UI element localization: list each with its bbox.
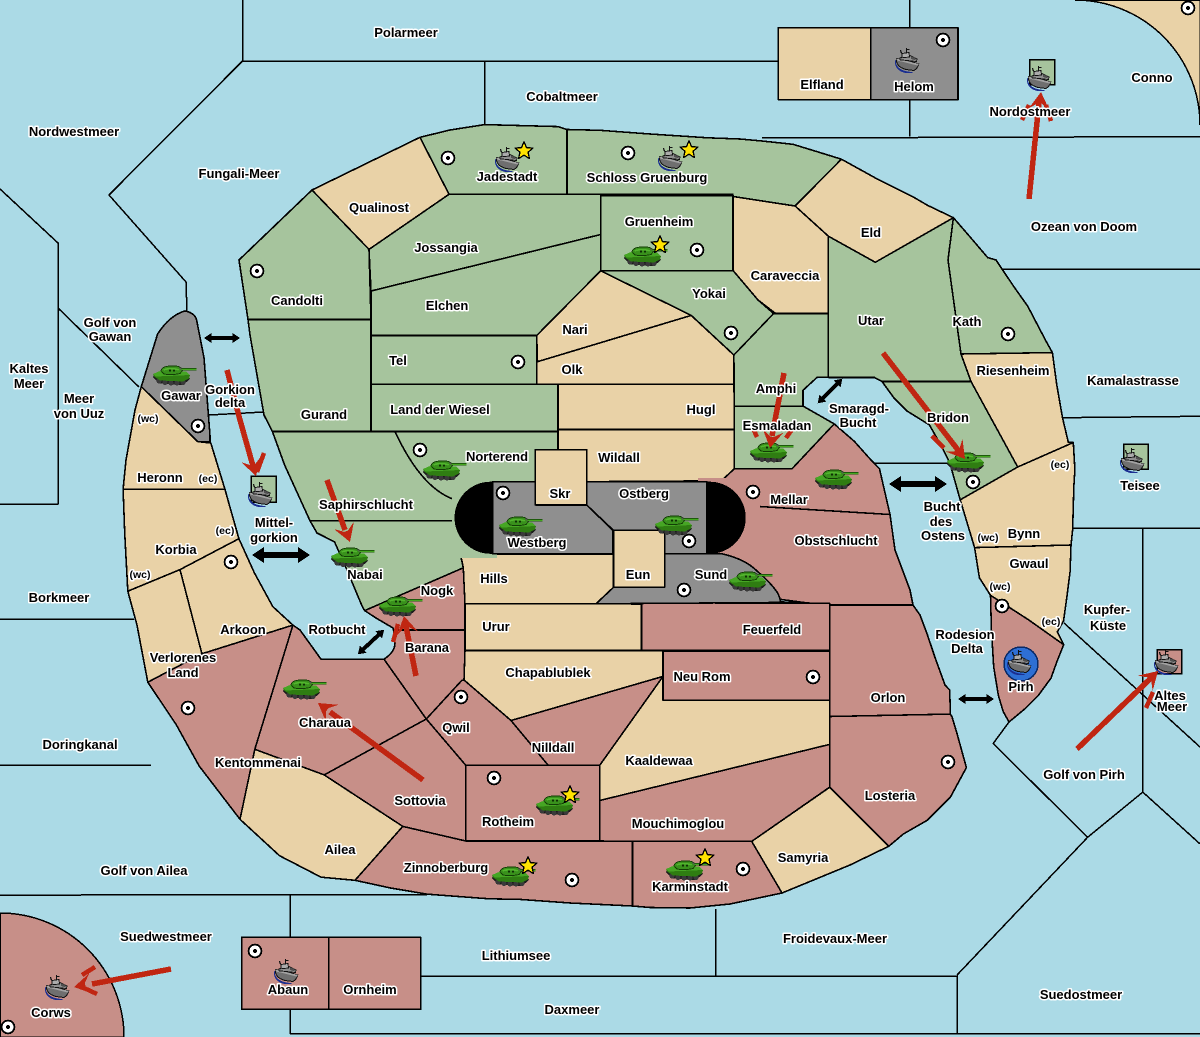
svg-text:Rotheim: Rotheim <box>482 814 534 829</box>
svg-text:Saphirschlucht: Saphirschlucht <box>319 497 414 512</box>
svg-text:Suedwestmeer: Suedwestmeer <box>120 929 212 944</box>
svg-text:Charaua: Charaua <box>299 715 352 730</box>
svg-text:Chapablublek: Chapablublek <box>505 665 591 680</box>
svg-text:Froidevaux-Meer: Froidevaux-Meer <box>783 931 887 946</box>
svg-text:gorkion: gorkion <box>250 530 298 545</box>
svg-text:(ec): (ec) <box>1042 616 1061 628</box>
svg-text:Borkmeer: Borkmeer <box>29 590 90 605</box>
svg-text:Qwil: Qwil <box>442 720 469 735</box>
svg-text:(ec): (ec) <box>199 473 218 485</box>
svg-text:Sund: Sund <box>695 567 728 582</box>
svg-text:Samyria: Samyria <box>778 850 829 865</box>
svg-text:Abaun: Abaun <box>268 982 309 997</box>
svg-text:Gruenheim: Gruenheim <box>625 214 694 229</box>
svg-text:Mittel-: Mittel- <box>255 515 293 530</box>
svg-text:Urur: Urur <box>482 619 509 634</box>
svg-text:Golf von Ailea: Golf von Ailea <box>101 863 189 878</box>
svg-text:(wc): (wc) <box>978 532 999 544</box>
svg-text:Feuerfeld: Feuerfeld <box>743 622 802 637</box>
svg-text:(wc): (wc) <box>990 581 1011 593</box>
svg-text:Gurand: Gurand <box>301 407 347 422</box>
svg-text:Caraveccia: Caraveccia <box>751 268 820 283</box>
svg-text:Bucht: Bucht <box>924 499 962 514</box>
svg-text:Kath: Kath <box>953 314 982 329</box>
svg-text:Candolti: Candolti <box>271 293 323 308</box>
svg-text:Esmaladan: Esmaladan <box>743 418 812 433</box>
svg-text:delta: delta <box>215 395 246 410</box>
svg-text:Kaaldewaa: Kaaldewaa <box>625 753 693 768</box>
svg-text:Küste: Küste <box>1090 618 1126 633</box>
svg-text:Bucht: Bucht <box>840 415 878 430</box>
svg-text:Olk: Olk <box>562 362 584 377</box>
svg-text:Heronn: Heronn <box>137 470 183 485</box>
svg-text:Neu Rom: Neu Rom <box>673 669 730 684</box>
svg-text:Doringkanal: Doringkanal <box>42 737 117 752</box>
svg-text:Meer: Meer <box>1157 699 1187 714</box>
svg-text:Bynn: Bynn <box>1008 526 1041 541</box>
svg-text:Eld: Eld <box>861 225 881 240</box>
svg-text:Barana: Barana <box>405 640 450 655</box>
svg-text:Ostberg: Ostberg <box>619 486 669 501</box>
svg-text:Nari: Nari <box>562 322 587 337</box>
svg-text:Hills: Hills <box>480 571 507 586</box>
svg-text:Westberg: Westberg <box>508 535 567 550</box>
svg-text:Land der Wiesel: Land der Wiesel <box>390 402 490 417</box>
svg-text:Hugl: Hugl <box>687 402 716 417</box>
svg-text:Qualinost: Qualinost <box>349 200 410 215</box>
svg-text:(ec): (ec) <box>216 525 235 537</box>
svg-text:(ec): (ec) <box>1051 459 1070 471</box>
svg-text:Teisee: Teisee <box>1120 478 1160 493</box>
svg-text:Smaragd-: Smaragd- <box>829 401 889 416</box>
svg-text:Nogk: Nogk <box>421 583 454 598</box>
svg-text:Suedostmeer: Suedostmeer <box>1040 987 1122 1002</box>
svg-text:Delta: Delta <box>951 641 984 656</box>
svg-text:Obstschlucht: Obstschlucht <box>794 533 878 548</box>
svg-text:Rodesion: Rodesion <box>935 627 994 642</box>
svg-text:Kentommenai: Kentommenai <box>215 755 301 770</box>
svg-text:Utar: Utar <box>858 313 884 328</box>
svg-text:Korbia: Korbia <box>155 542 197 557</box>
svg-text:Kamalastrasse: Kamalastrasse <box>1087 373 1179 388</box>
svg-text:des: des <box>930 514 952 529</box>
svg-text:Pirh: Pirh <box>1008 679 1033 694</box>
svg-text:Lithiumsee: Lithiumsee <box>482 948 551 963</box>
svg-text:Bridon: Bridon <box>927 410 969 425</box>
svg-text:Golf von: Golf von <box>84 315 137 330</box>
svg-text:Fungali-Meer: Fungali-Meer <box>199 166 280 181</box>
svg-text:(wc): (wc) <box>130 569 151 581</box>
svg-text:Elfland: Elfland <box>800 77 843 92</box>
svg-text:Corws: Corws <box>31 1005 71 1020</box>
svg-text:Sottovia: Sottovia <box>394 793 446 808</box>
svg-text:Nilldall: Nilldall <box>532 740 575 755</box>
svg-text:Schloss Gruenburg: Schloss Gruenburg <box>587 170 708 185</box>
svg-text:Gawar: Gawar <box>161 388 201 403</box>
svg-text:Losteria: Losteria <box>865 788 916 803</box>
svg-text:Daxmeer: Daxmeer <box>545 1002 600 1017</box>
svg-text:Golf von Pirh: Golf von Pirh <box>1043 767 1125 782</box>
svg-text:Nordostmeer: Nordostmeer <box>990 104 1071 119</box>
svg-text:Mouchimoglou: Mouchimoglou <box>632 816 724 831</box>
svg-text:Nordwestmeer: Nordwestmeer <box>29 124 119 139</box>
svg-text:Jossangia: Jossangia <box>414 240 478 255</box>
svg-text:Helom: Helom <box>894 79 934 94</box>
svg-text:Conno: Conno <box>1131 70 1172 85</box>
svg-text:Meer: Meer <box>14 376 44 391</box>
svg-text:Kupfer-: Kupfer- <box>1084 602 1130 617</box>
svg-text:Jadestadt: Jadestadt <box>477 169 538 184</box>
svg-text:Meer: Meer <box>64 391 94 406</box>
svg-text:Nabai: Nabai <box>347 567 382 582</box>
svg-text:Ailea: Ailea <box>324 842 356 857</box>
svg-text:Verlorenes: Verlorenes <box>150 650 217 665</box>
svg-text:Riesenheim: Riesenheim <box>977 363 1050 378</box>
svg-text:Cobaltmeer: Cobaltmeer <box>526 89 598 104</box>
svg-text:Kaltes: Kaltes <box>9 361 48 376</box>
svg-text:Wildall: Wildall <box>598 450 640 465</box>
svg-text:Ornheim: Ornheim <box>343 982 396 997</box>
svg-text:Elchen: Elchen <box>426 298 469 313</box>
svg-text:von Uuz: von Uuz <box>54 406 105 421</box>
svg-text:Gawan: Gawan <box>89 329 132 344</box>
svg-text:Karminstadt: Karminstadt <box>652 879 729 894</box>
svg-text:Norterend: Norterend <box>466 449 528 464</box>
svg-text:Polarmeer: Polarmeer <box>374 25 438 40</box>
svg-text:Orlon: Orlon <box>871 690 906 705</box>
svg-text:Tel: Tel <box>389 353 407 368</box>
svg-text:Mellar: Mellar <box>770 492 808 507</box>
svg-text:Rotbucht: Rotbucht <box>308 622 366 637</box>
svg-text:Yokai: Yokai <box>692 286 726 301</box>
svg-text:Amphi: Amphi <box>756 381 796 396</box>
svg-text:(wc): (wc) <box>138 413 159 425</box>
svg-text:Zinnoberburg: Zinnoberburg <box>404 860 489 875</box>
svg-text:Ozean von Doom: Ozean von Doom <box>1031 219 1137 234</box>
svg-text:Eun: Eun <box>626 567 651 582</box>
svg-text:Arkoon: Arkoon <box>220 622 266 637</box>
svg-text:Skr: Skr <box>550 486 571 501</box>
svg-text:Ostens: Ostens <box>921 528 965 543</box>
svg-text:Land: Land <box>167 665 198 680</box>
svg-text:Gwaul: Gwaul <box>1009 556 1048 571</box>
